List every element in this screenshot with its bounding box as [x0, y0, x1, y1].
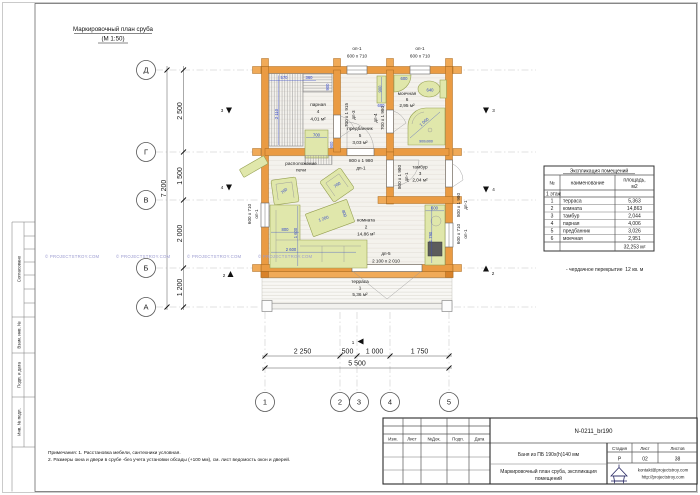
row-name: моечная: [563, 236, 583, 242]
title-block: Изм. Лист №Док. Подп. Дата N-0211_br190 …: [383, 418, 697, 484]
dim-left-3: 1 200: [177, 279, 184, 297]
door4-size: 700 х 1 980: [380, 106, 385, 130]
stove-note-1: расположение: [285, 161, 317, 166]
row-area: 4,006: [628, 221, 641, 227]
axis-v-4: А: [143, 303, 148, 312]
plan-title-line2: (М 1:50): [101, 36, 124, 43]
win-top1-label: оп-1: [352, 46, 362, 51]
drawing-sheet: Согласовано Взам. инв. № Подп. и дата Ин…: [0, 0, 700, 495]
row-name: комната: [563, 206, 582, 212]
marker-1-bottom: 1: [352, 340, 355, 345]
dim-bottom-0: 2 250: [294, 349, 312, 356]
door5-size: 2 100 х 2 010: [372, 259, 400, 264]
tb-sheet-value: 02: [642, 456, 648, 462]
win-left-size: 600 х 710: [247, 203, 252, 224]
attic-note: - чердачное перекрытие 12 кв. м: [566, 267, 644, 273]
tb-sheets-value: 38: [675, 456, 681, 462]
room-moechnaya-name: моечная: [398, 91, 417, 96]
marker-3-right: 3: [492, 108, 495, 113]
door1b-label: дп-1: [404, 172, 409, 182]
door3-label: дп-3: [351, 110, 356, 120]
dim-sofa-w: 800: [282, 227, 290, 232]
tb-col-list: Лист: [407, 437, 417, 442]
row-area: 3,026: [628, 229, 641, 235]
explication-col-name: наименование: [571, 181, 605, 187]
stove-note-2: печи: [296, 168, 306, 173]
axis-h-2: 3: [357, 398, 361, 407]
row-num: 2: [551, 206, 554, 212]
dim-sofa-l2: 2 600: [286, 247, 297, 252]
marker-4-left: 4: [221, 185, 224, 190]
row-name: тамбур: [563, 214, 580, 220]
win-right-size: 600 х 710: [456, 223, 461, 244]
axis-h-0: 1: [263, 398, 267, 407]
dim-bottom-1: 500: [342, 349, 354, 356]
marker-2-left: 2: [223, 273, 226, 278]
frame-label-approved: Согласовано: [17, 255, 22, 282]
win-top2-label: оп-1: [415, 46, 425, 51]
room-tambur-name: тамбур: [412, 165, 428, 170]
explication-col-area-2: м2: [631, 184, 637, 190]
row-num: 1: [551, 199, 554, 205]
room-terrasa-name: терраса: [351, 279, 369, 284]
room-predbannik-name: предбанник: [347, 126, 373, 131]
plan-canvas: Согласовано Взам. инв. № Подп. и дата Ин…: [0, 0, 700, 495]
axis-h-1: 2: [338, 398, 342, 407]
axis-v-3: Б: [144, 264, 149, 273]
room-tambur-num: 3: [419, 171, 422, 176]
row-area: 2,044: [628, 214, 641, 220]
dim-shower-size: 900х900: [419, 140, 433, 144]
room-komnata-name: комната: [357, 218, 375, 223]
tb-email: kontakt@projectstroy.com: [638, 468, 689, 473]
dim-bottom-total: 5 500: [348, 361, 366, 368]
tb-col-izm: Изм.: [388, 437, 397, 442]
axis-v-1: Г: [144, 148, 148, 157]
door1a-label: дп-1: [356, 166, 366, 171]
door1b-size: 800 х 1 980: [397, 165, 402, 189]
row-num: 5: [551, 229, 554, 235]
frame-label-sign-date: Подп. и дата: [17, 362, 22, 388]
dim-left-total: 7 200: [161, 180, 168, 198]
dim-sofa-l1: 1 600: [293, 227, 298, 238]
door4-label: дп-4: [373, 113, 378, 123]
dim-bench-len: 2 110: [274, 108, 279, 119]
dim-wc: 640: [427, 88, 435, 93]
door1c-label: дп-1: [463, 200, 468, 210]
room-moechnaya-area: 2,95 м²: [399, 103, 415, 108]
win-top2-size: 600 х 710: [410, 54, 431, 59]
dim-left-2: 2 000: [177, 225, 184, 243]
tb-sheets-label: Листов: [670, 446, 685, 451]
axis-v-2: В: [143, 196, 148, 205]
room-moechnaya-num: 6: [406, 97, 409, 102]
plan-title-line1: Маркировочный план сруба: [73, 26, 154, 33]
marker-3-left: 3: [221, 108, 224, 113]
tb-col-doc: №Док.: [427, 437, 440, 442]
room-parnaya-area: 4,01 м²: [310, 117, 326, 122]
room-komnata-num: 2: [365, 225, 368, 230]
room-parnaya-num: 4: [317, 109, 320, 114]
dim-shelf-len: 900: [378, 85, 383, 93]
explication-floor: 1 этаж: [546, 192, 562, 198]
marker-4-right: 4: [492, 187, 495, 192]
watermark-1: © PROJECTSTROY.COM: [45, 254, 100, 259]
frame-label-replace-inv: Взам. инв. №: [17, 321, 22, 348]
win-left-label: оп-1: [254, 209, 259, 219]
explication-col-area-1: площадь,: [623, 178, 645, 184]
dim-kitchen-l: 1 790: [428, 231, 433, 242]
door1a-size: 800 х 1 980: [349, 158, 373, 163]
dim-bench-side: 900: [325, 83, 330, 91]
dim-bench-b: 360: [306, 75, 314, 80]
dim-kitchen-w: 600: [431, 206, 439, 211]
row-name: терраса: [563, 199, 582, 205]
win-top1-size: 600 х 710: [347, 54, 368, 59]
dim-left-0: 2 500: [177, 102, 184, 120]
axis-h-3: 4: [388, 398, 392, 407]
watermark-3: © PROJECTSTROY.COM: [187, 254, 242, 259]
tb-project: Баня из ПБ 190х(h)140 мм: [518, 452, 580, 458]
tb-doc-code: N-0211_br190: [575, 429, 614, 435]
tb-sheet-name-2: помещений: [535, 475, 562, 482]
dim-stove-w: 700: [313, 133, 321, 138]
dim-bench-a: 570: [281, 75, 289, 80]
marker-2-right: 2: [492, 271, 495, 276]
tb-sheet-label: Лист: [640, 446, 650, 451]
door3-size: 700 х 1 915: [344, 103, 349, 127]
explication-title: Экспликация помещений: [570, 168, 629, 175]
axis-h-4: 5: [447, 398, 451, 407]
explication-col-num: №: [549, 181, 554, 187]
dim-bottom-3: 1 750: [411, 349, 429, 356]
room-predbannik-num: 5: [359, 133, 362, 138]
door5-label: дп-5: [381, 251, 391, 256]
watermark-2: © PROJECTSTROY.COM: [116, 254, 171, 259]
note-line-1: Примечания: 1. Расстановка мебели, санте…: [48, 450, 181, 456]
row-area: 14,863: [627, 206, 643, 212]
tb-stage-label: Стадия: [612, 446, 628, 451]
row-area: 5,363: [628, 199, 641, 205]
win-right-label: оп-1: [463, 229, 468, 239]
row-name: предбанник: [563, 229, 591, 235]
watermark-4: © PROJECTSTROY.COM: [258, 254, 313, 259]
tb-col-date: Дата: [475, 437, 485, 442]
row-num: 4: [551, 221, 554, 227]
door1c-size: 800 х 1 980: [456, 193, 461, 217]
room-terrasa-num: 1: [359, 286, 362, 291]
row-num: 6: [551, 236, 554, 242]
axis-v-0: Д: [143, 66, 148, 75]
row-name: парная: [563, 221, 580, 227]
frame-label-inv-num: Инв. № подл.: [17, 408, 22, 435]
row-num: 3: [551, 214, 554, 220]
room-predbannik-area: 3,03 м²: [352, 140, 368, 145]
room-komnata-area: 14,86 м²: [357, 232, 375, 237]
row-area: 2,951: [628, 236, 641, 242]
explication-total: 32,253 м²: [624, 245, 646, 251]
dim-stove-d: 900: [329, 141, 334, 149]
tb-col-sign: Подп.: [452, 437, 464, 442]
room-terrasa-area: 5,36 м²: [352, 292, 368, 297]
note-line-2: 2. Размеры окна и двери в срубе -без уче…: [48, 456, 290, 463]
tb-site: http://projectstroy.com: [642, 475, 685, 480]
dim-left-1: 1 500: [177, 167, 184, 185]
dim-sink: 600: [401, 76, 409, 81]
room-tambur-area: 2,04 м²: [412, 178, 428, 183]
tb-sheet-name-1: Маркировочный план сруба, экспликация: [500, 468, 597, 475]
room-parnaya-name: парная: [310, 102, 326, 107]
dim-bottom-2: 1 000: [366, 349, 384, 356]
